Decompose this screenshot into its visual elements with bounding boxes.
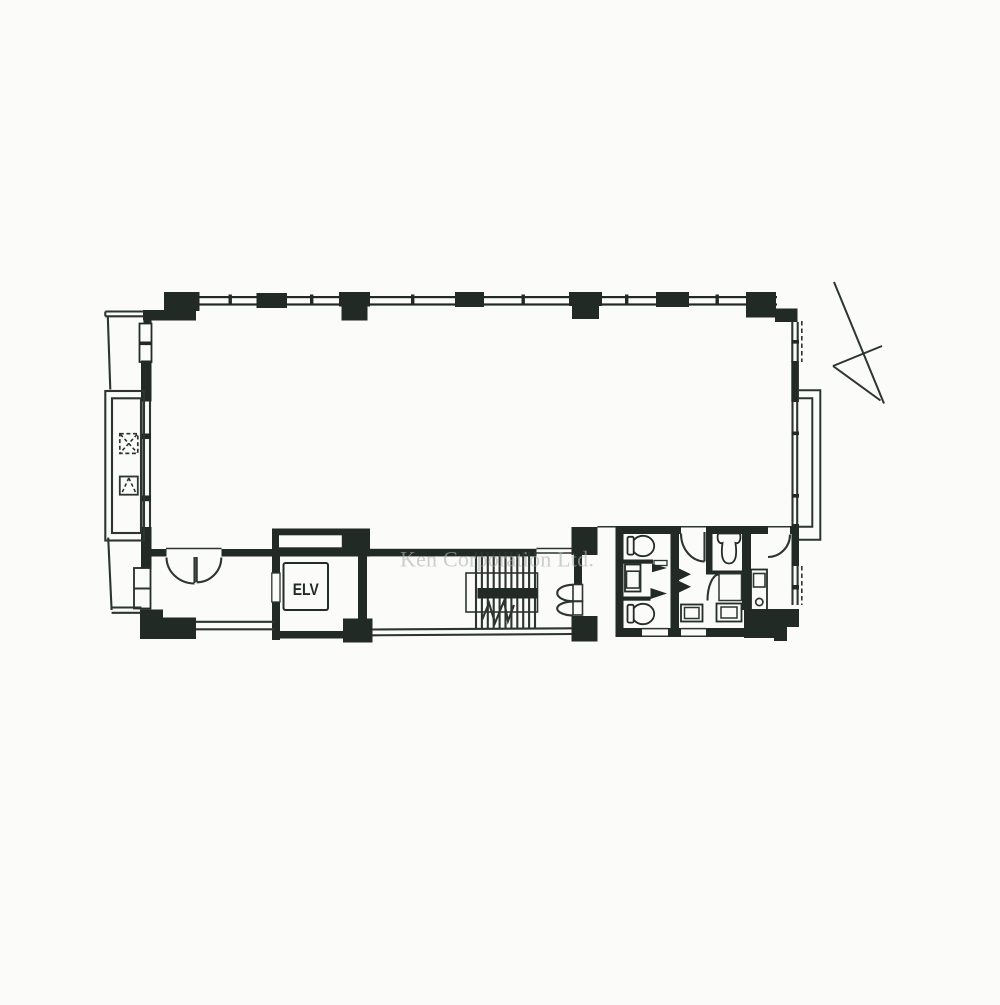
svg-text:Ken Corporation Ltd.: Ken Corporation Ltd. (400, 547, 594, 572)
svg-text:ELV: ELV (293, 581, 320, 600)
